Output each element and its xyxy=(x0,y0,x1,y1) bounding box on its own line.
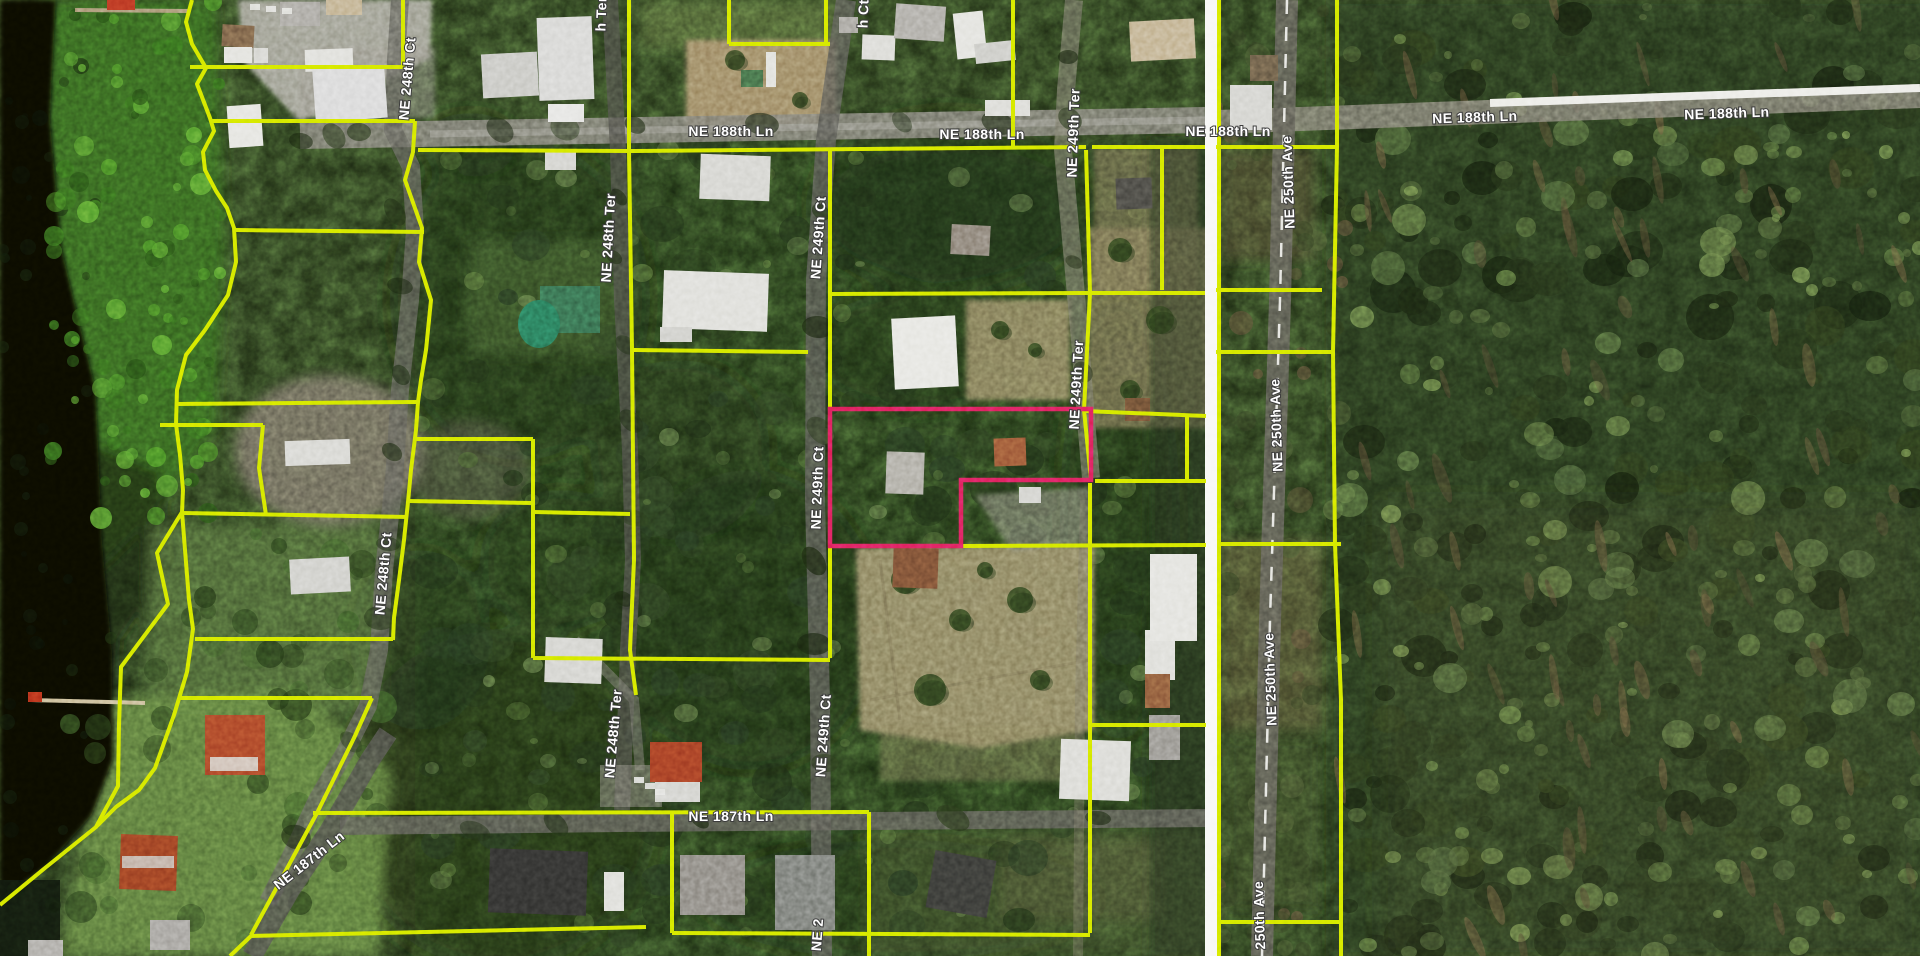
svg-text:250th Ave: 250th Ave xyxy=(1250,881,1268,950)
svg-text:NE 188th Ln: NE 188th Ln xyxy=(688,123,773,139)
svg-text:h Ter: h Ter xyxy=(592,0,609,32)
svg-text:NE 187th Ln: NE 187th Ln xyxy=(688,808,773,824)
svg-text:NE 249th Ct: NE 249th Ct xyxy=(808,446,827,529)
svg-text:NE 249th Ter: NE 249th Ter xyxy=(1063,88,1082,178)
svg-text:NE 188th Ln: NE 188th Ln xyxy=(939,126,1024,142)
svg-text:NE 250th Ave: NE 250th Ave xyxy=(1266,378,1285,472)
svg-text:h Ct: h Ct xyxy=(855,0,872,29)
svg-text:NE 2: NE 2 xyxy=(808,918,826,952)
svg-text:NE 250th Ave: NE 250th Ave xyxy=(1278,135,1297,229)
svg-text:NE 250th Ave: NE 250th Ave xyxy=(1260,632,1279,726)
svg-text:NE 188th Ln: NE 188th Ln xyxy=(1684,104,1770,123)
svg-text:NE 188th Ln: NE 188th Ln xyxy=(1185,123,1270,139)
svg-text:NE 188th Ln: NE 188th Ln xyxy=(1432,108,1518,127)
